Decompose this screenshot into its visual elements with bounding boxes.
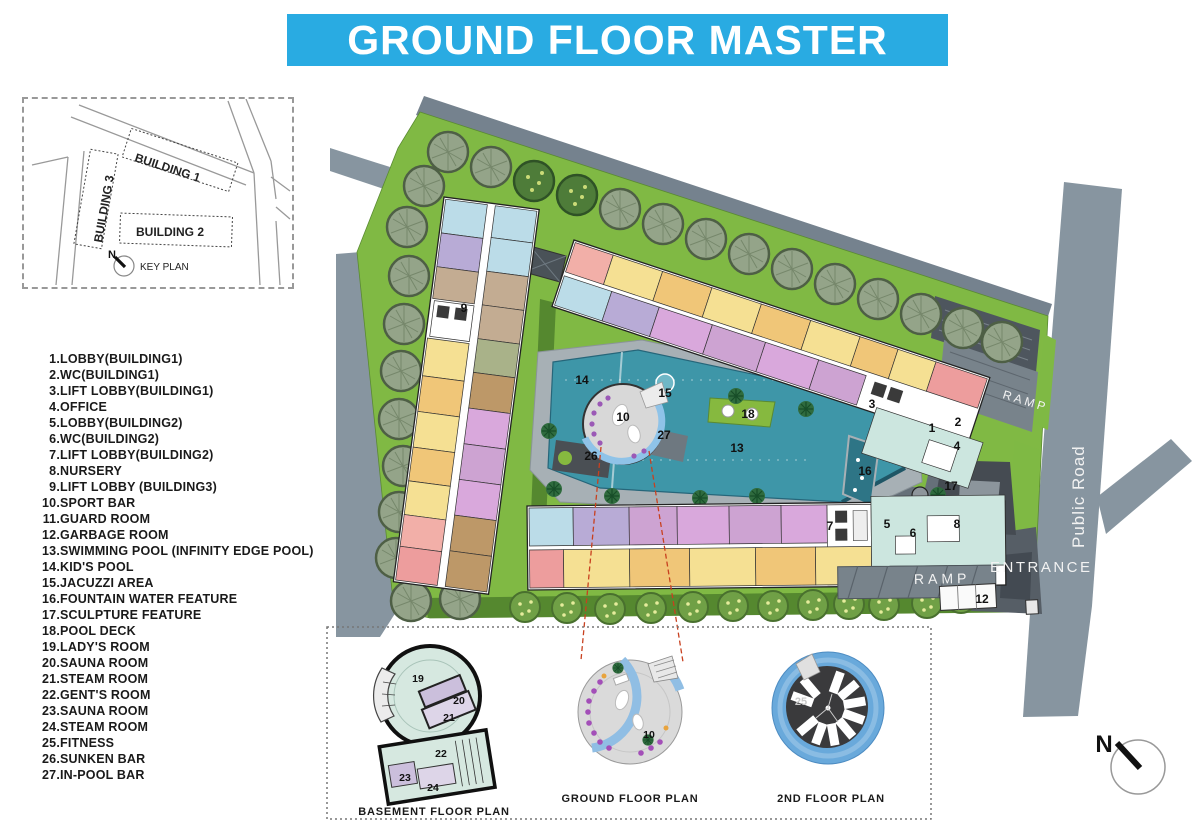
ground-floor-plan-detail: 10 GROUND FLOOR PLAN xyxy=(561,656,698,805)
ramp-bottom-label: RAMP xyxy=(914,570,971,587)
plan-marker: 8 xyxy=(954,517,961,531)
plan-marker: 17 xyxy=(944,479,958,493)
ground-plan-label: GROUND FLOOR PLAN xyxy=(561,793,698,805)
basement-marker: 23 xyxy=(399,772,411,784)
plan-marker: 2 xyxy=(955,415,962,429)
plan-marker: 7 xyxy=(827,519,834,533)
plan-marker: 15 xyxy=(658,386,672,400)
ground-detail-marker: 10 xyxy=(643,729,655,741)
plan-marker: 27 xyxy=(657,428,671,442)
north-needle-icon xyxy=(1117,743,1140,768)
plan-marker: 10 xyxy=(616,410,630,424)
basement-marker: 20 xyxy=(453,695,465,707)
plan-marker: 1 xyxy=(929,421,936,435)
basement-marker: 22 xyxy=(435,748,447,760)
basement-marker: 19 xyxy=(412,673,424,685)
guard-house xyxy=(1026,600,1039,615)
basement-floor-plan: 19 20 21 22 23 24 BASEMENT FLOOR PLAN xyxy=(358,646,509,818)
master-plan-page: GROUND FLOOR MASTER PLAN BUILDING 3 BUIL… xyxy=(0,0,1200,824)
plan-marker: 3 xyxy=(869,397,876,411)
plan-marker: 18 xyxy=(741,407,755,421)
compass-north-label: N xyxy=(1095,731,1112,758)
public-road-label: Public Road xyxy=(1069,445,1088,548)
second-plan-label: 2ND FLOOR PLAN xyxy=(777,793,885,805)
plan-marker: 5 xyxy=(884,517,891,531)
second-floor-plan-detail: 25 2ND FLOOR PLAN xyxy=(772,652,885,805)
second-detail-marker: 25 xyxy=(795,696,807,708)
plan-marker: 4 xyxy=(954,439,961,453)
plan-marker: 13 xyxy=(730,441,744,455)
plan-marker: 12 xyxy=(975,592,989,606)
north-compass: N xyxy=(1095,731,1165,794)
basement-marker: 24 xyxy=(427,782,439,794)
plan-marker: 6 xyxy=(910,526,917,540)
plan-marker: 14 xyxy=(575,373,589,387)
plan-marker: 9 xyxy=(461,301,468,315)
basement-marker: 21 xyxy=(443,712,455,724)
site-plan: RAMP RAMP ENTRANCE Public Road 9 14 15 1… xyxy=(0,0,1200,824)
plan-marker: 26 xyxy=(584,449,598,463)
plan-marker: 16 xyxy=(858,464,872,478)
entrance-label: ENTRANCE xyxy=(990,559,1093,576)
basement-plan-label: BASEMENT FLOOR PLAN xyxy=(358,806,509,818)
